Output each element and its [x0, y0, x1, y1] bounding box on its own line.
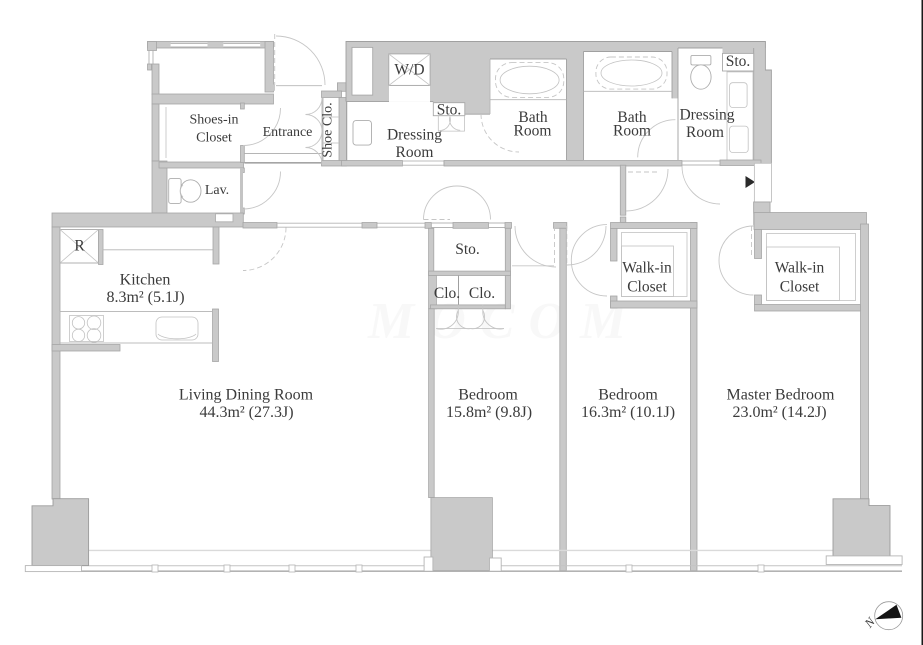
svg-text:Shoes-in: Shoes-in — [190, 113, 239, 128]
svg-text:Master Bedroom: Master Bedroom — [727, 387, 836, 404]
svg-text:W/D: W/D — [394, 62, 424, 79]
svg-text:Walk-in: Walk-in — [775, 260, 825, 277]
svg-text:44.3m² (27.3J): 44.3m² (27.3J) — [199, 404, 293, 421]
svg-text:Living Dining Room: Living Dining Room — [179, 387, 314, 404]
svg-text:Closet: Closet — [780, 279, 820, 296]
svg-text:Shoe Clo.: Shoe Clo. — [320, 102, 335, 157]
svg-text:Bedroom: Bedroom — [458, 387, 518, 404]
svg-text:MOCOM: MOCOM — [367, 293, 640, 350]
svg-text:Room: Room — [396, 144, 434, 161]
svg-text:Clo.: Clo. — [469, 285, 495, 302]
svg-text:Closet: Closet — [627, 279, 667, 296]
svg-text:Clo.: Clo. — [434, 285, 460, 302]
svg-text:Bedroom: Bedroom — [598, 387, 658, 404]
svg-text:Dressing: Dressing — [679, 107, 734, 124]
svg-text:Room: Room — [514, 123, 552, 140]
svg-text:Sto.: Sto. — [726, 53, 751, 70]
svg-text:8.3m² (5.1J): 8.3m² (5.1J) — [106, 289, 184, 306]
svg-text:Dressing: Dressing — [387, 127, 442, 144]
svg-text:Room: Room — [613, 123, 651, 140]
svg-text:Sto.: Sto. — [437, 102, 462, 119]
svg-text:Walk-in: Walk-in — [622, 260, 672, 277]
svg-text:Room: Room — [686, 124, 724, 141]
svg-text:Entrance: Entrance — [263, 125, 313, 140]
svg-text:Lav.: Lav. — [205, 183, 229, 198]
svg-text:23.0m² (14.2J): 23.0m² (14.2J) — [732, 404, 826, 421]
svg-text:16.3m² (10.1J): 16.3m² (10.1J) — [581, 404, 675, 421]
svg-text:Kitchen: Kitchen — [120, 272, 171, 289]
svg-text:Sto.: Sto. — [455, 241, 480, 258]
svg-text:R: R — [74, 238, 85, 255]
svg-text:Closet: Closet — [196, 131, 232, 146]
svg-text:15.8m² (9.8J): 15.8m² (9.8J) — [446, 404, 532, 421]
